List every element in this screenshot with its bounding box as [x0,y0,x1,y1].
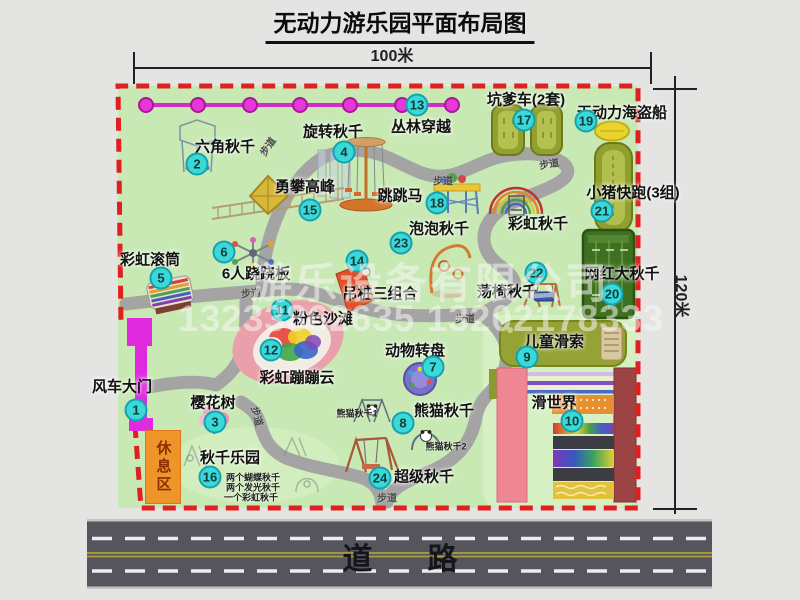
equipment-label: 熊猫秋千 [414,400,474,421]
num-badge: 18 [426,192,449,215]
sub-label: 一个彩虹秋千 [224,491,278,504]
equipment-label: 跳跳马 [377,185,422,206]
equipment-label: 丛林穿越 [391,116,451,137]
equipment-label: 6人跷跷板 [222,263,290,284]
pirate-ship-illustration [595,122,629,141]
equipment-label: 旋转秋千 [303,121,363,142]
equipment-label: 风车大门 [92,376,152,397]
trail-label: 步道 [433,173,453,188]
num-badge: 8 [392,412,415,435]
trail-label: 步道 [240,284,261,301]
trail-label: 步道 [455,311,475,326]
num-badge: 9 [516,346,539,369]
sub-label: 熊猫秋千2 [425,440,466,453]
num-badge: 5 [150,267,173,290]
equipment-label: 彩虹秋千 [508,213,568,234]
num-badge: 12 [260,339,283,362]
equipment-label: 粉色沙滩 [293,308,353,329]
road-label: 道路 [288,534,513,578]
height-dimension-label: 120米 [671,275,695,318]
equipment-label: 彩虹滚筒 [120,249,180,270]
equipment-label: 泡泡秋千 [409,218,469,239]
equipment-label: 吊桩三组合 [342,283,417,304]
num-badge: 11 [271,299,294,322]
equipment-label: 超级秋千 [394,466,454,487]
equipment-label: 彩虹蹦蹦云 [259,367,334,388]
num-badge: 15 [299,199,322,222]
num-badge: 2 [186,153,209,176]
rest-area-box: 休息区 [145,430,181,504]
sub-label: 熊猫秋千1 [336,407,377,420]
num-badge: 10 [561,410,584,433]
num-badge: 1 [125,399,148,422]
num-badge: 23 [390,232,413,255]
num-badge: 20 [601,283,624,306]
page-title: 无动力游乐园平面布局图 [266,4,535,44]
num-badge: 14 [346,250,369,273]
equipment-label: 六角秋千 [195,136,255,157]
equipment-label: 坑爹车(2套) [487,89,565,110]
num-badge: 4 [333,141,356,164]
num-badge: 19 [575,110,598,133]
equipment-label: 网红大秋千 [584,263,659,284]
equipment-label: 荡椅秋千 [477,281,537,302]
num-badge: 13 [406,94,429,117]
num-badge: 17 [513,109,536,132]
num-badge: 16 [199,466,222,489]
num-badge: 7 [422,356,445,379]
width-dimension-label: 100米 [371,42,414,66]
equipment-label: 秋千乐园 [200,447,260,468]
num-badge: 24 [369,467,392,490]
equipment-label: 樱花树 [190,392,235,413]
num-badge: 22 [525,262,548,285]
equipment-label: 勇攀高峰 [275,176,335,197]
num-badge: 3 [204,411,227,434]
park-layout-map: 无动力游乐园平面布局图 100米 120米 休息区 风车大门1六角秋千2樱花树3… [0,0,800,600]
num-badge: 6 [213,241,236,264]
num-badge: 21 [591,200,614,223]
trail-label: 步道 [377,490,397,505]
